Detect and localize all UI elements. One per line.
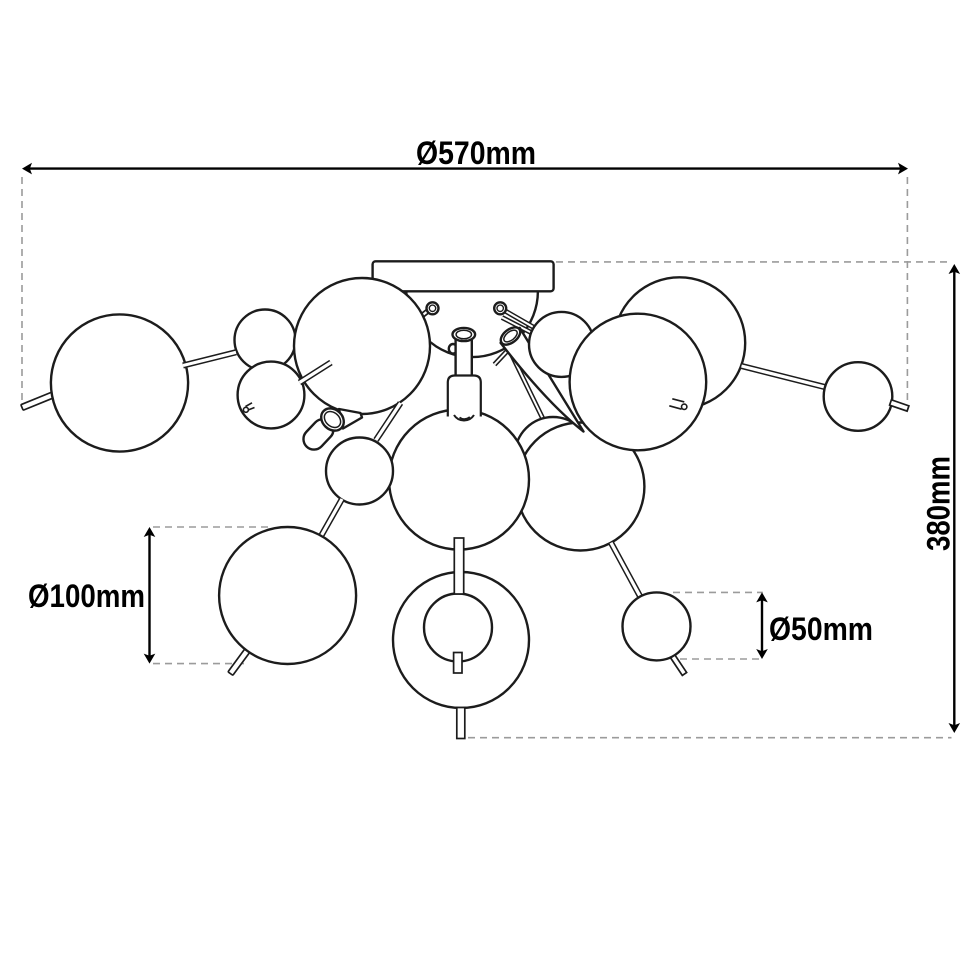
svg-text:Ø100mm: Ø100mm [28,578,145,614]
svg-text:Ø570mm: Ø570mm [416,135,536,171]
svg-text:380mm: 380mm [921,456,957,551]
svg-text:Ø50mm: Ø50mm [769,611,873,647]
